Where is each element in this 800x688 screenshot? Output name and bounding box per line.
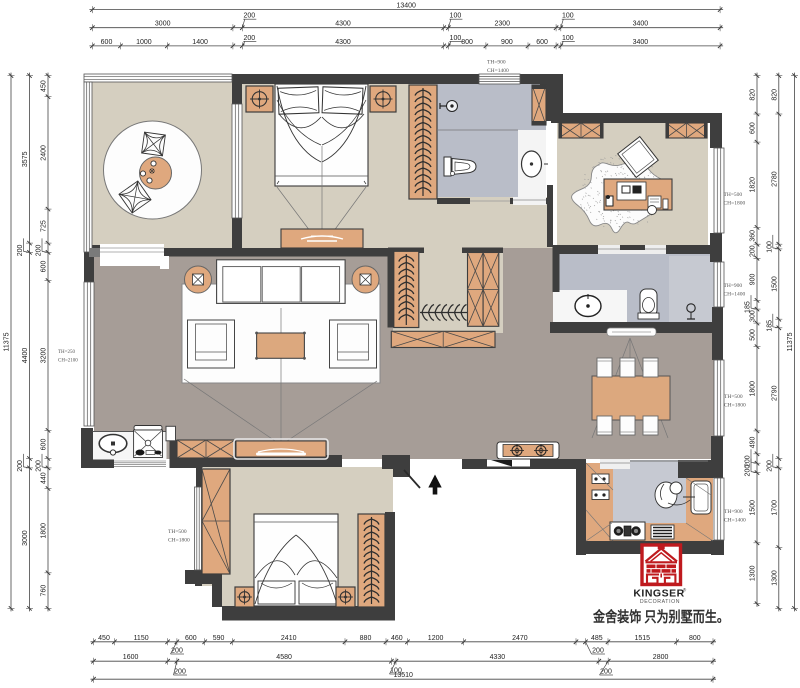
svg-text:TH=500: TH=500 <box>724 394 743 400</box>
svg-text:3400: 3400 <box>633 21 649 28</box>
svg-text:4300: 4300 <box>335 21 351 28</box>
svg-text:2780: 2780 <box>771 171 778 187</box>
svg-text:360: 360 <box>750 230 757 242</box>
svg-text:450: 450 <box>98 635 110 642</box>
svg-text:1200: 1200 <box>428 635 444 642</box>
svg-text:485: 485 <box>591 635 603 642</box>
svg-text:3000: 3000 <box>22 530 29 546</box>
svg-text:185: 185 <box>766 320 773 332</box>
svg-text:4400: 4400 <box>22 348 29 364</box>
svg-text:2470: 2470 <box>512 635 528 642</box>
svg-text:590: 590 <box>213 635 225 642</box>
svg-text:KINGSER: KINGSER <box>633 588 684 600</box>
svg-text:4580: 4580 <box>276 654 292 661</box>
svg-text:2400: 2400 <box>41 145 48 161</box>
svg-text:CH=1800: CH=1800 <box>724 201 746 207</box>
svg-text:200: 200 <box>171 648 183 655</box>
svg-text:CH=2100: CH=2100 <box>58 359 78 364</box>
svg-text:TH=900: TH=900 <box>487 60 506 66</box>
svg-text:TH=900: TH=900 <box>724 509 743 515</box>
svg-text:3200: 3200 <box>41 348 48 364</box>
svg-text:440: 440 <box>41 472 48 484</box>
svg-text:TH=500: TH=500 <box>724 192 743 198</box>
svg-text:CH=1400: CH=1400 <box>487 68 509 74</box>
svg-text:1400: 1400 <box>192 39 208 46</box>
svg-text:725: 725 <box>41 220 48 232</box>
svg-text:2800: 2800 <box>653 654 669 661</box>
svg-text:200: 200 <box>745 465 752 477</box>
svg-text:800: 800 <box>461 39 473 46</box>
svg-text:TH=500: TH=500 <box>168 529 187 535</box>
svg-text:100: 100 <box>766 241 773 253</box>
svg-text:460: 460 <box>391 635 403 642</box>
svg-text:100: 100 <box>562 35 574 42</box>
svg-text:2300: 2300 <box>495 21 511 28</box>
svg-text:1500: 1500 <box>750 500 757 516</box>
svg-text:500: 500 <box>750 329 757 341</box>
svg-text:600: 600 <box>41 439 48 451</box>
svg-text:900: 900 <box>750 273 757 285</box>
svg-text:200: 200 <box>243 13 255 20</box>
svg-text:11375: 11375 <box>787 332 794 351</box>
svg-text:DECORATION: DECORATION <box>640 599 680 605</box>
svg-text:200: 200 <box>592 648 604 655</box>
svg-text:TH=250: TH=250 <box>58 350 75 355</box>
svg-text:1300: 1300 <box>750 565 757 581</box>
svg-text:3000: 3000 <box>155 21 171 28</box>
svg-text:490: 490 <box>750 436 757 448</box>
svg-text:600: 600 <box>41 261 48 273</box>
svg-text:1500: 1500 <box>771 276 778 292</box>
svg-text:1820: 1820 <box>750 177 757 193</box>
svg-text:1700: 1700 <box>771 500 778 516</box>
svg-text:1800: 1800 <box>41 523 48 539</box>
svg-text:11375: 11375 <box>4 332 11 351</box>
svg-text:600: 600 <box>750 122 757 134</box>
svg-text:200: 200 <box>36 460 43 472</box>
svg-text:CH=1400: CH=1400 <box>724 292 746 298</box>
svg-text:2410: 2410 <box>281 635 297 642</box>
svg-text:100: 100 <box>562 13 574 20</box>
svg-text:1300: 1300 <box>771 570 778 586</box>
svg-text:300: 300 <box>750 310 757 322</box>
svg-text:1150: 1150 <box>134 635 149 642</box>
svg-text:800: 800 <box>689 635 701 642</box>
svg-text:200: 200 <box>36 244 43 256</box>
svg-text:200: 200 <box>766 460 773 472</box>
svg-text:820: 820 <box>750 89 757 101</box>
svg-text:100: 100 <box>450 35 462 42</box>
svg-text:CH=1400: CH=1400 <box>724 518 746 524</box>
svg-text:200: 200 <box>600 669 612 676</box>
svg-text:1800: 1800 <box>750 381 757 397</box>
svg-text:200: 200 <box>750 245 757 257</box>
svg-text:3575: 3575 <box>22 151 29 167</box>
svg-text:200: 200 <box>17 460 24 472</box>
svg-text:600: 600 <box>536 39 548 46</box>
svg-text:CH=1800: CH=1800 <box>724 403 746 409</box>
svg-text:TH=900: TH=900 <box>724 283 743 289</box>
svg-text:600: 600 <box>101 39 113 46</box>
svg-text:880: 880 <box>360 635 372 642</box>
svg-text:1000: 1000 <box>136 39 152 46</box>
svg-text:2790: 2790 <box>771 385 778 401</box>
svg-text:200: 200 <box>243 35 255 42</box>
svg-text:100: 100 <box>450 13 462 20</box>
svg-text:1600: 1600 <box>123 654 139 661</box>
svg-text:13400: 13400 <box>396 3 416 10</box>
svg-text:200: 200 <box>174 669 186 676</box>
svg-text:3400: 3400 <box>633 39 649 46</box>
svg-text:CH=1800: CH=1800 <box>168 538 190 544</box>
svg-text:4300: 4300 <box>335 39 351 46</box>
svg-text:450: 450 <box>41 80 48 92</box>
svg-text:200: 200 <box>17 244 24 256</box>
svg-text:4330: 4330 <box>490 654 506 661</box>
svg-text:600: 600 <box>185 635 197 642</box>
svg-text:760: 760 <box>41 585 48 597</box>
svg-text:1515: 1515 <box>635 635 651 642</box>
svg-text:900: 900 <box>501 39 513 46</box>
svg-text:820: 820 <box>771 89 778 101</box>
svg-text:金舍装饰 只为别墅而生。: 金舍装饰 只为别墅而生。 <box>592 608 729 626</box>
